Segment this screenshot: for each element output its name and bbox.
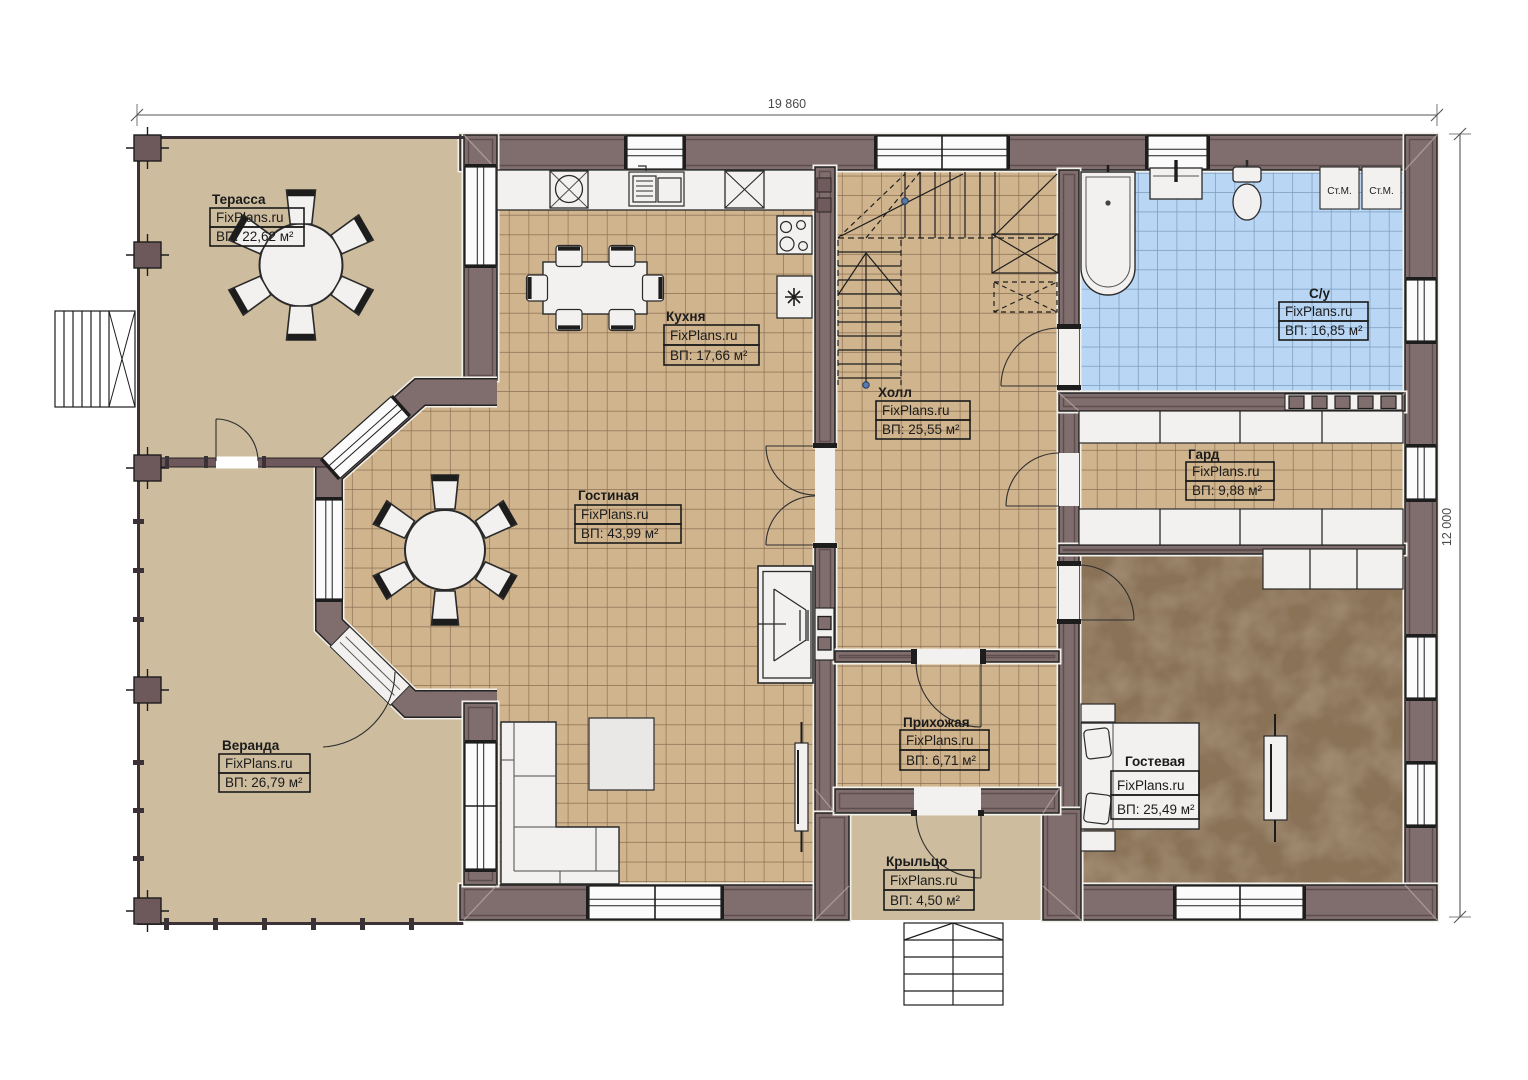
svg-text:FixPlans.ru: FixPlans.ru (216, 210, 284, 225)
svg-text:Гард: Гард (1188, 447, 1220, 462)
svg-text:С/у: С/у (1309, 286, 1331, 301)
svg-text:FixPlans.ru: FixPlans.ru (890, 873, 958, 888)
svg-text:FixPlans.ru: FixPlans.ru (581, 507, 649, 522)
svg-text:ВП: 6,71 м²: ВП: 6,71 м² (906, 753, 977, 768)
svg-text:Крыльцо: Крыльцо (886, 854, 947, 869)
svg-text:ВП: 26,79 м²: ВП: 26,79 м² (225, 775, 303, 790)
svg-text:Ст.М.: Ст.М. (1327, 186, 1352, 197)
svg-text:ВП: 43,99 м²: ВП: 43,99 м² (581, 526, 659, 541)
svg-text:ВП: 25,49 м²: ВП: 25,49 м² (1117, 802, 1195, 817)
svg-text:FixPlans.ru: FixPlans.ru (882, 403, 950, 418)
svg-text:Холл: Холл (878, 385, 912, 400)
svg-text:FixPlans.ru: FixPlans.ru (225, 756, 293, 771)
svg-text:FixPlans.ru: FixPlans.ru (670, 328, 738, 343)
svg-text:Гостиная: Гостиная (578, 488, 639, 503)
svg-text:ВП: 4,50 м²: ВП: 4,50 м² (890, 893, 961, 908)
svg-text:19 860: 19 860 (768, 97, 806, 111)
svg-text:12 000: 12 000 (1440, 508, 1454, 546)
svg-text:FixPlans.ru: FixPlans.ru (1117, 778, 1185, 793)
svg-text:Ст.М.: Ст.М. (1369, 186, 1394, 197)
svg-text:Веранда: Веранда (222, 738, 280, 753)
svg-text:Прихожая: Прихожая (903, 715, 970, 730)
svg-text:ВП: 17,66 м²: ВП: 17,66 м² (670, 348, 748, 363)
svg-text:FixPlans.ru: FixPlans.ru (906, 733, 974, 748)
svg-text:Терасса: Терасса (212, 192, 266, 207)
svg-text:Гостевая: Гостевая (1125, 754, 1185, 769)
svg-text:FixPlans.ru: FixPlans.ru (1285, 304, 1353, 319)
svg-text:ВП: 25,55 м²: ВП: 25,55 м² (882, 422, 960, 437)
svg-text:ВП: 16,85 м²: ВП: 16,85 м² (1285, 323, 1363, 338)
svg-text:Кухня: Кухня (666, 309, 705, 324)
svg-text:FixPlans.ru: FixPlans.ru (1192, 464, 1260, 479)
svg-text:ВП: 9,88 м²: ВП: 9,88 м² (1192, 483, 1263, 498)
svg-text:ВП: 22,62 м²: ВП: 22,62 м² (216, 229, 294, 244)
